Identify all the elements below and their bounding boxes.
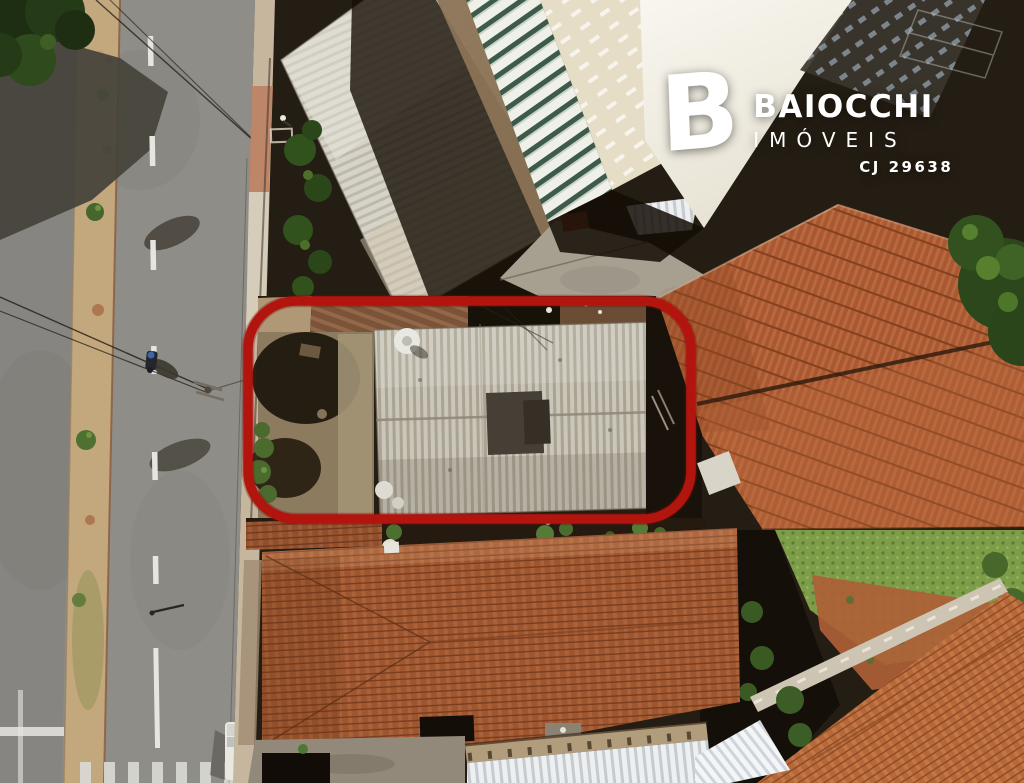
brand-text-block: BAIOCCHI IMÓVEIS CJ 29638 [753, 92, 953, 176]
brand-license: CJ 29638 [753, 158, 953, 176]
brand-name: BAIOCCHI [753, 92, 953, 123]
pedestrian [280, 115, 286, 121]
property-backyard [247, 332, 374, 522]
water-tank [375, 481, 393, 499]
stop-line [0, 727, 64, 736]
brand-division: IMÓVEIS [753, 130, 953, 150]
median-tree [76, 430, 96, 450]
garage-opening [262, 753, 330, 783]
aerial-photo: B BAIOCCHI IMÓVEIS CJ 29638 [0, 0, 1024, 783]
property-main-roof [374, 299, 658, 516]
highlighted-property [247, 296, 741, 526]
bottom-house-roof [262, 528, 740, 748]
baiocchi-logo-icon: B [659, 69, 741, 157]
median-tree [86, 203, 104, 221]
brand-watermark: B BAIOCCHI IMÓVEIS CJ 29638 [660, 70, 953, 176]
